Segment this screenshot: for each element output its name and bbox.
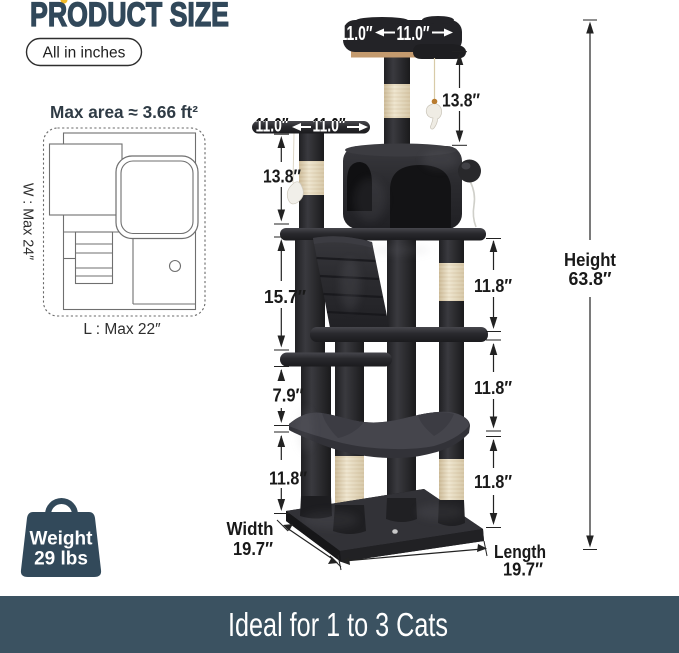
svg-text:11.8″: 11.8″ [474, 276, 512, 296]
svg-text:11.0″: 11.0″ [397, 23, 430, 45]
svg-text:7.9″: 7.9″ [273, 386, 304, 406]
svg-text:11.8″: 11.8″ [269, 469, 307, 489]
svg-text:Weight: Weight [30, 529, 94, 550]
svg-text:L : Max 22″: L : Max 22″ [83, 321, 161, 338]
svg-text:All in inches: All in inches [43, 45, 126, 62]
svg-text:11.8″: 11.8″ [474, 472, 512, 492]
svg-text:19.7″: 19.7″ [503, 560, 543, 580]
svg-text:Max area ≈ 3.66 ft²: Max area ≈ 3.66 ft² [50, 102, 198, 122]
svg-text:63.8″: 63.8″ [569, 269, 612, 289]
svg-text:13.8″: 13.8″ [263, 167, 301, 187]
svg-text:29 lbs: 29 lbs [34, 549, 88, 570]
svg-text:11.8″: 11.8″ [474, 378, 512, 398]
svg-text:Ideal for 1 to 3 Cats: Ideal for 1 to 3 Cats [228, 606, 448, 643]
svg-text:Height: Height [564, 250, 616, 270]
svg-text:W : Max 24″: W : Max 24″ [20, 183, 36, 260]
svg-text:15.7″: 15.7″ [264, 287, 306, 307]
svg-text:PRODUCT SIZE: PRODUCT SIZE [30, 0, 229, 34]
svg-text:11.0″: 11.0″ [340, 23, 373, 45]
svg-text:19.7″: 19.7″ [233, 539, 273, 559]
svg-text:Width: Width [227, 519, 274, 539]
svg-text:13.8″: 13.8″ [442, 91, 480, 111]
